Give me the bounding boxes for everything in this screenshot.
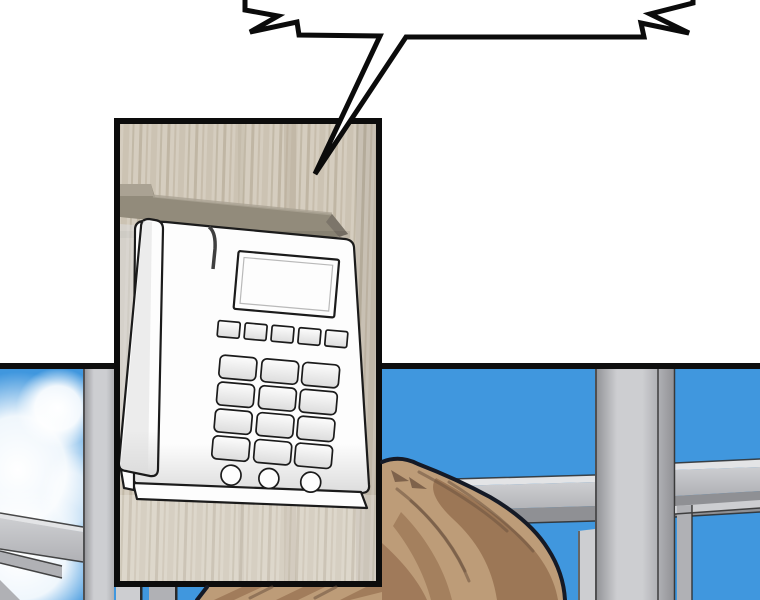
round-button bbox=[258, 468, 280, 490]
keypad-button bbox=[256, 412, 295, 438]
function-button bbox=[244, 323, 267, 341]
under-panel-frame-edge bbox=[140, 587, 143, 600]
under-panel-frame-strip bbox=[116, 587, 140, 600]
under-panel-frame-edge bbox=[175, 587, 178, 600]
inset-panel bbox=[114, 118, 382, 587]
round-button bbox=[300, 471, 322, 493]
window-frame-left-pillar bbox=[83, 369, 114, 600]
function-button bbox=[298, 328, 321, 346]
wall-phone bbox=[119, 219, 369, 508]
keypad-button bbox=[260, 358, 299, 384]
keypad-button bbox=[253, 439, 292, 465]
keypad-button bbox=[214, 409, 253, 435]
window-sash-left-of-pillar bbox=[578, 529, 595, 600]
panel-interior bbox=[119, 124, 376, 581]
comic-art bbox=[0, 0, 760, 600]
keypad-button bbox=[301, 362, 340, 388]
window-bar-face-right bbox=[675, 467, 760, 496]
function-button bbox=[325, 330, 348, 348]
wall-ledge-top-face bbox=[120, 184, 154, 196]
function-button bbox=[217, 320, 240, 338]
under-panel-frame-strip bbox=[149, 587, 175, 600]
comic-page bbox=[0, 0, 760, 600]
keypad-button bbox=[211, 435, 250, 461]
keypad-button bbox=[216, 382, 255, 408]
window-inner-sash-vertical bbox=[677, 505, 692, 600]
keypad-button bbox=[218, 355, 257, 381]
keypad-button bbox=[299, 389, 338, 415]
window-frame-right-pillar bbox=[595, 369, 658, 600]
keypad-button bbox=[296, 416, 335, 442]
right-pillar-side-face bbox=[658, 369, 675, 600]
keypad-button bbox=[258, 385, 297, 411]
round-button bbox=[220, 464, 242, 486]
function-button bbox=[271, 325, 294, 343]
keypad-button bbox=[294, 443, 333, 469]
